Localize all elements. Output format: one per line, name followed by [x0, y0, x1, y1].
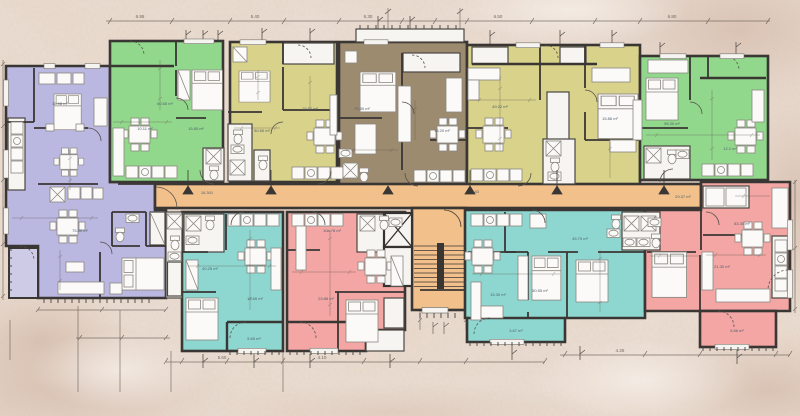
svg-text:15.30 m²: 15.30 m²: [490, 292, 506, 297]
svg-text:6.50: 6.50: [494, 14, 503, 19]
svg-text:15.86 m²: 15.86 m²: [602, 116, 618, 121]
svg-text:23.88 m²: 23.88 m²: [318, 296, 334, 301]
svg-text:98.30 m²: 98.30 m²: [664, 121, 680, 126]
svg-text:16.301: 16.301: [201, 190, 214, 195]
svg-text:60.65 m²: 60.65 m²: [157, 101, 173, 106]
svg-text:15.85 m²: 15.85 m²: [188, 126, 204, 131]
svg-text:13.20 m²: 13.20 m²: [434, 128, 450, 133]
svg-text:21.30 m²: 21.30 m²: [714, 264, 730, 269]
svg-text:75.80 m²: 75.80 m²: [72, 228, 88, 233]
svg-text:3.67 m²: 3.67 m²: [509, 328, 523, 333]
svg-text:6.95: 6.95: [136, 14, 145, 19]
svg-text:75.80 m²: 75.80 m²: [354, 106, 370, 111]
svg-text:10a.78 m²: 10a.78 m²: [323, 228, 342, 233]
svg-text:15.98 m²: 15.98 m²: [52, 101, 68, 106]
svg-text:40.25 m²: 40.25 m²: [202, 266, 218, 271]
svg-text:4.10: 4.10: [318, 355, 327, 360]
svg-text:6.30: 6.30: [364, 14, 373, 19]
svg-text:49.22 m²: 49.22 m²: [492, 104, 508, 109]
svg-text:50.65 m²: 50.65 m²: [254, 128, 270, 133]
svg-text:50.55 m²: 50.55 m²: [532, 288, 548, 293]
svg-text:6.80: 6.80: [668, 14, 677, 19]
svg-text:45.70 m²: 45.70 m²: [572, 236, 588, 241]
svg-text:5.86 m²: 5.86 m²: [730, 328, 744, 333]
svg-text:5.60: 5.60: [218, 355, 227, 360]
svg-text:29.37 m²: 29.37 m²: [675, 194, 691, 199]
svg-text:5.40: 5.40: [251, 14, 260, 19]
svg-text:83.30 m²: 83.30 m²: [734, 221, 750, 226]
svg-text:4.25: 4.25: [616, 348, 625, 353]
svg-text:15.80 m²: 15.80 m²: [302, 106, 318, 111]
svg-text:5.65 m²: 5.65 m²: [247, 336, 261, 341]
svg-text:12.2 m²: 12.2 m²: [723, 146, 737, 151]
svg-text:10.11 m²: 10.11 m²: [137, 126, 153, 131]
svg-text:15.65 m²: 15.65 m²: [247, 296, 263, 301]
